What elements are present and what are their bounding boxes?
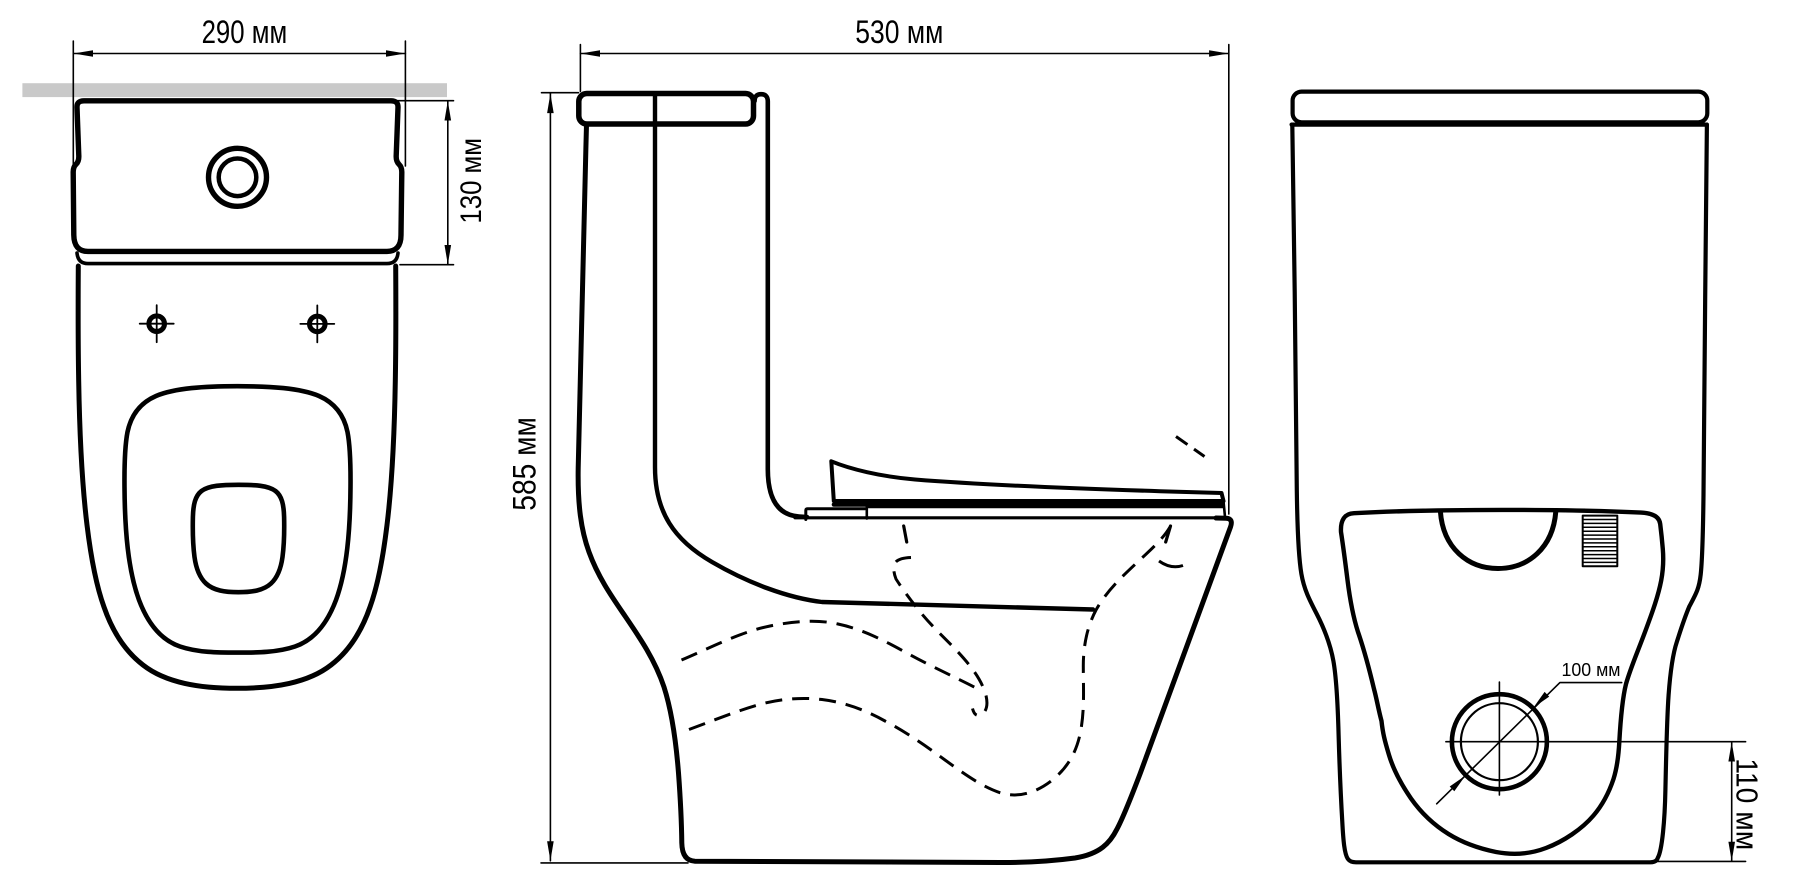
svg-text:100 мм: 100 мм: [1562, 659, 1621, 680]
svg-text:530 мм: 530 мм: [855, 14, 943, 50]
svg-text:110 мм: 110 мм: [1730, 758, 1765, 850]
svg-text:130 мм: 130 мм: [455, 138, 488, 224]
svg-text:585 мм: 585 мм: [506, 417, 542, 511]
svg-text:290 мм: 290 мм: [202, 14, 288, 50]
